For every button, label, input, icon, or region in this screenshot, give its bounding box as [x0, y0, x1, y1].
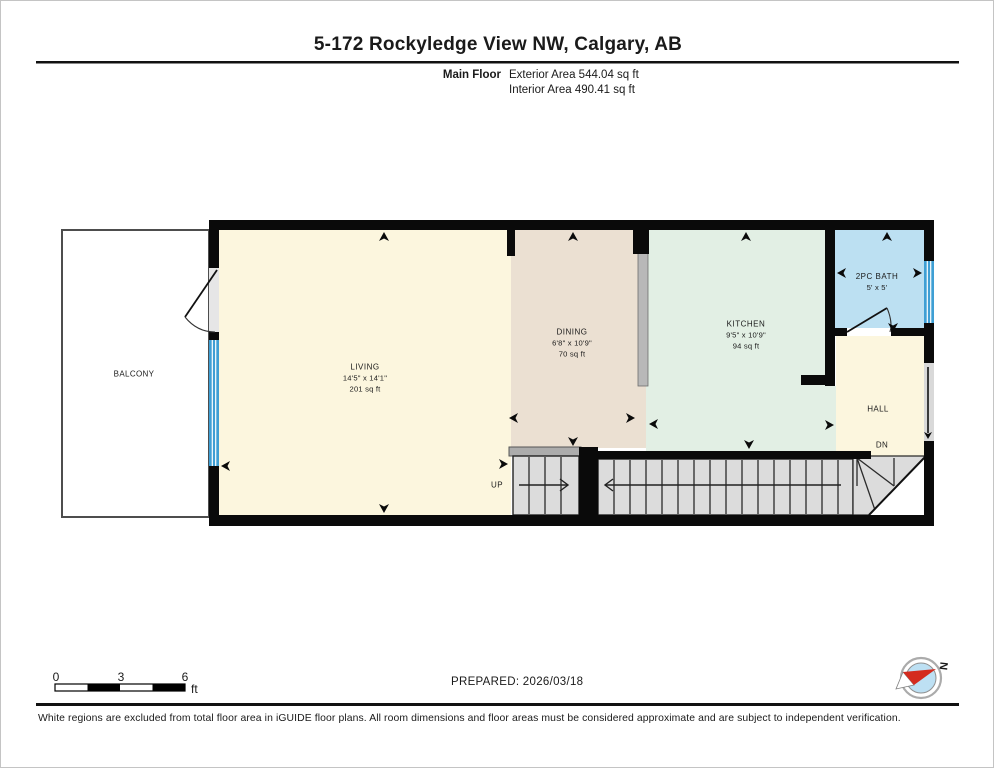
floorplan-drawing	[1, 1, 994, 768]
floorplan-page: 5-172 Rockyledge View NW, Calgary, AB Ma…	[0, 0, 994, 768]
wall-stub-living-dining	[507, 230, 515, 256]
kitchen-label: KITCHEN 9'5" x 10'9" 94 sq ft	[726, 319, 766, 352]
bath-window	[924, 261, 934, 323]
wall-right-mid	[924, 323, 934, 363]
wall-right-lower	[924, 441, 934, 526]
wall-left-stub	[209, 332, 219, 340]
bath-dimensions: 5' x 5'	[856, 282, 899, 293]
scale-tick-0: 0	[53, 670, 60, 684]
wall-top	[209, 220, 934, 230]
scale-bar	[55, 684, 185, 691]
kitchen-area: 94 sq ft	[726, 341, 766, 352]
kitchen-name: KITCHEN	[726, 319, 766, 330]
scale-bar-segment	[153, 684, 186, 691]
dining-area: 70 sq ft	[552, 349, 592, 360]
dining-name: DINING	[552, 327, 592, 338]
living-name: LIVING	[343, 362, 387, 373]
kitchen-dimensions: 9'5" x 10'9"	[726, 330, 766, 341]
wall-bath-bottom-left	[835, 328, 847, 336]
scale-tick-3: 3	[118, 670, 125, 684]
balcony-door-threshold	[209, 268, 219, 332]
wall-stair-divider	[579, 447, 598, 516]
wall-bath-left	[825, 230, 835, 386]
scale-tick-6: 6	[182, 670, 189, 684]
bath-label: 2PC BATH 5' x 5'	[856, 271, 899, 293]
hall-label: HALL	[867, 404, 888, 415]
hall-floor	[836, 336, 924, 456]
wall-right-upper	[924, 220, 934, 261]
dining-label: DINING 6'8" x 10'9" 70 sq ft	[552, 327, 592, 360]
floor-label: Main Floor	[391, 69, 501, 81]
compass-icon	[896, 658, 941, 698]
bath-name: 2PC BATH	[856, 271, 899, 282]
wall-stair-top	[598, 451, 871, 459]
balcony-label: BALCONY	[114, 369, 155, 380]
kitchen-counter-strip	[638, 253, 648, 386]
interior-area-label: Interior Area 490.41 sq ft	[509, 84, 635, 96]
scale-bar-segment	[88, 684, 121, 691]
wall-stub-dining-kitchen	[633, 230, 649, 254]
compass-north-label: N	[937, 661, 950, 670]
dining-dimensions: 6'8" x 10'9"	[552, 338, 592, 349]
entry-door-threshold	[924, 363, 934, 441]
footer-disclaimer: White regions are excluded from total fl…	[38, 713, 901, 724]
scale-unit-label: ft	[191, 682, 198, 696]
stair-landing-edge	[509, 447, 581, 456]
stairs-down-label: DN	[876, 441, 888, 450]
exterior-area-label: Exterior Area 544.04 sq ft	[509, 69, 639, 81]
wall-bath-bottom-right	[891, 328, 924, 336]
living-label: LIVING 14'5" x 14'1" 201 sq ft	[343, 362, 387, 395]
footer-divider	[36, 703, 959, 706]
wall-kitchen-stub	[801, 375, 825, 385]
wall-left-upper	[209, 220, 219, 268]
wall-bottom	[209, 515, 934, 526]
page-title: 5-172 Rockyledge View NW, Calgary, AB	[314, 34, 682, 56]
prepared-date-label: PREPARED: 2026/03/18	[451, 676, 583, 688]
header-divider	[36, 61, 959, 64]
living-area: 201 sq ft	[343, 384, 387, 395]
living-window	[209, 340, 219, 466]
living-dimensions: 14'5" x 14'1"	[343, 373, 387, 384]
stairs-up-label: UP	[491, 481, 503, 490]
wall-left-lower	[209, 466, 219, 526]
